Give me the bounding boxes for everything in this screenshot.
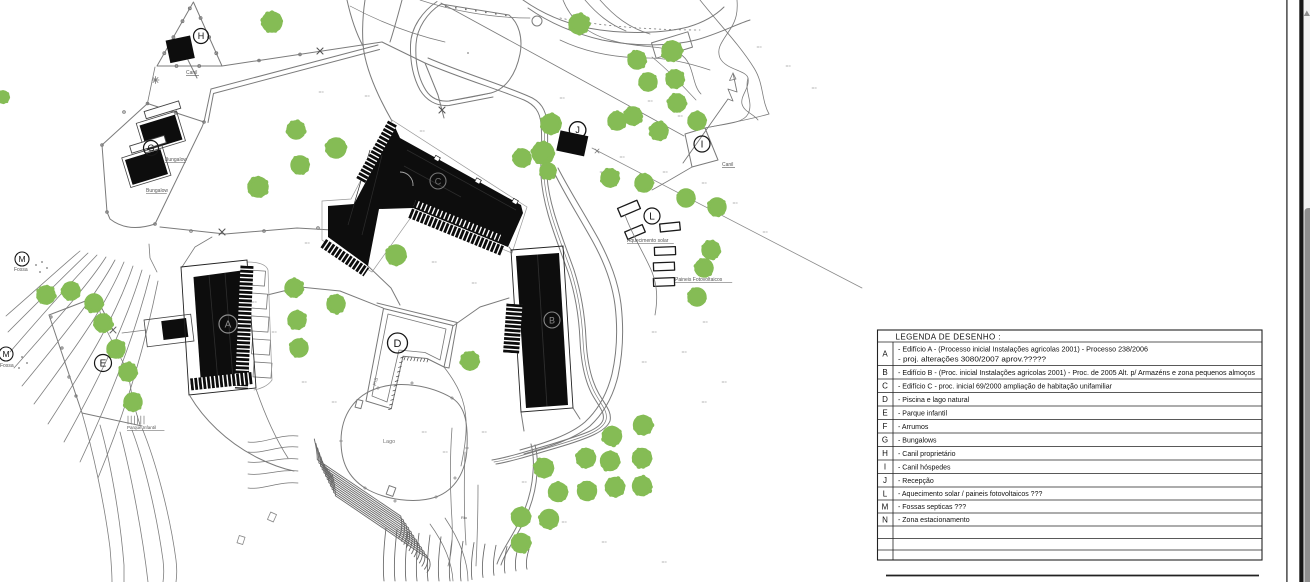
svg-text:L: L <box>649 212 655 223</box>
svg-text:- Fossas septicas ???: - Fossas septicas ??? <box>898 504 966 511</box>
svg-text:Lago: Lago <box>383 439 395 445</box>
svg-text:- Arrumos: - Arrumos <box>898 424 929 431</box>
svg-text:L: L <box>883 489 888 498</box>
svg-text:J: J <box>883 476 887 485</box>
svg-text:C: C <box>435 177 442 187</box>
svg-text:- Aquecimento solar / paineis: - Aquecimento solar / paineis fotovoltai… <box>898 491 1042 498</box>
svg-text:Bungalow: Bungalow <box>165 157 187 163</box>
svg-text:I: I <box>884 463 886 472</box>
svg-text:Canil: Canil <box>722 162 733 168</box>
svg-text:F: F <box>883 422 888 431</box>
svg-text:D: D <box>394 338 402 350</box>
svg-text:E: E <box>882 409 887 418</box>
svg-text:Paineis Fotovoltaicos: Paineis Fotovoltaicos <box>675 277 723 283</box>
svg-text:- Parque infantil: - Parque infantil <box>898 411 947 418</box>
svg-text:LEGENDA DE DESENHO :: LEGENDA DE DESENHO : <box>896 333 1001 342</box>
svg-text:Parque Infantil: Parque Infantil <box>127 425 156 430</box>
svg-text:H: H <box>882 449 888 458</box>
svg-text:- Recepção: - Recepção <box>898 478 934 485</box>
svg-text:B: B <box>882 368 887 377</box>
svg-text:A: A <box>225 320 232 331</box>
svg-text:G: G <box>147 143 154 153</box>
svg-text:N: N <box>882 515 888 524</box>
svg-text:- Canil hóspedes: - Canil hóspedes <box>898 465 951 472</box>
svg-text:Canil: Canil <box>186 70 197 76</box>
svg-text:- Zona estacionamento: - Zona estacionamento <box>898 517 970 524</box>
svg-text:Rio: Rio <box>461 515 468 520</box>
svg-text:M: M <box>2 349 9 359</box>
svg-text:Fossa: Fossa <box>0 363 14 369</box>
svg-text:Fossa: Fossa <box>14 267 28 273</box>
svg-text:M: M <box>882 502 889 511</box>
svg-text:D: D <box>882 395 888 404</box>
svg-text:A: A <box>882 350 888 359</box>
svg-text:Bungalow: Bungalow <box>146 188 168 194</box>
svg-text:B: B <box>549 316 555 326</box>
svg-text:G: G <box>882 436 888 445</box>
svg-text:C: C <box>882 382 888 391</box>
svg-text:H: H <box>198 31 205 41</box>
svg-text:- Edifício A - (Processo inici: - Edifício A - (Processo inicial Instala… <box>898 347 1148 354</box>
svg-text:- proj. alterações 3080/2007: - proj. alterações 3080/2007 aprov.????? <box>898 357 1046 364</box>
svg-text:Aquecimento solar: Aquecimento solar <box>627 238 669 244</box>
svg-text:- Edifício B - (Proc. inicial: - Edifício B - (Proc. inicial Instalaçõe… <box>898 370 1255 377</box>
svg-text:I: I <box>701 140 704 151</box>
svg-text:M: M <box>18 254 25 264</box>
svg-text:E: E <box>100 359 107 370</box>
svg-text:- Edifício C - proc. inicial 6: - Edifício C - proc. inicial 69/2000 amp… <box>898 384 1113 391</box>
svg-text:J: J <box>575 125 580 135</box>
svg-text:- Bungalows: - Bungalows <box>898 438 937 445</box>
svg-text:- Canil proprietário: - Canil proprietário <box>898 451 956 458</box>
svg-text:- Piscina e lago natural: - Piscina e lago natural <box>898 397 970 404</box>
